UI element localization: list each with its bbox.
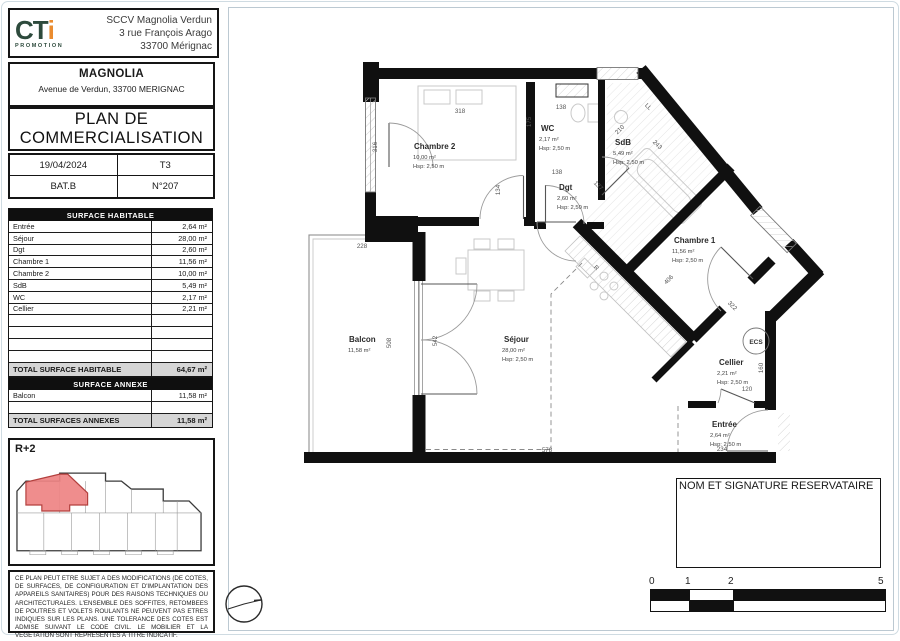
logo-i-text: i <box>48 15 55 45</box>
row-value: 10,00 m² <box>152 269 212 278</box>
row-value: 11,58 m² <box>152 391 212 400</box>
svg-text:WC: WC <box>541 124 555 133</box>
svg-text:Dgt: Dgt <box>559 183 573 192</box>
building-locator-miniplan <box>10 455 209 555</box>
svg-text:Hsp: 2,50 m: Hsp: 2,50 m <box>557 205 588 211</box>
disclaimer-text: CE PLAN PEUT ETRE SUJET A DES MODIFICATI… <box>15 575 208 641</box>
table-row-empty <box>9 338 212 350</box>
company-address: SCCV Magnolia Verdun 3 rue François Arag… <box>106 14 212 53</box>
project-box: MAGNOLIA Avenue de Verdun, 33700 MERIGNA… <box>8 62 215 107</box>
table-row: Chambre 210,00 m² <box>9 267 212 279</box>
floor-locator-box: R+2 <box>8 438 215 566</box>
svg-text:2,60 m²: 2,60 m² <box>557 196 577 202</box>
row-label: Cellier <box>9 304 152 315</box>
table-row: SdB5,49 m² <box>9 279 212 291</box>
company-header-box: CTi PROMOTION SCCV Magnolia Verdun 3 rue… <box>8 8 219 58</box>
scale-bar: 0 1 2 5 <box>650 576 886 612</box>
row-value: 2,17 m² <box>152 293 212 302</box>
row-value: 5,49 m² <box>152 281 212 290</box>
table-row: Cellier2,21 m² <box>9 303 212 315</box>
dim: 318 <box>455 108 466 115</box>
project-name: MAGNOLIA <box>10 68 213 80</box>
dim: 316 <box>372 141 379 152</box>
scale-ticks: 0 1 2 5 <box>650 576 886 589</box>
row-value: 2,21 m² <box>152 304 212 313</box>
dim: 542 <box>432 335 439 346</box>
scale-tick: 0 <box>649 576 655 587</box>
table-row: Séjour28,00 m² <box>9 232 212 244</box>
table-row: Entrée2,64 m² <box>9 221 212 232</box>
total-value: 64,67 m² <box>152 365 212 374</box>
toilet-bowl <box>571 104 585 122</box>
svg-text:Hsp: 2,50 m: Hsp: 2,50 m <box>502 357 533 363</box>
info-type: T3 <box>118 155 213 176</box>
total-value: 11,58 m² <box>152 416 212 425</box>
logo-promotion-text: PROMOTION <box>15 44 63 50</box>
dim: 120 <box>742 386 753 393</box>
room-label-wc: WC 2,17 m² Hsp: 2,50 m <box>539 124 570 152</box>
info-date: 19/04/2024 <box>10 155 118 176</box>
svg-text:Chambre 2: Chambre 2 <box>414 142 456 151</box>
ecs-label: ECS <box>749 339 763 346</box>
window-chambre1 <box>751 206 797 252</box>
project-address: Avenue de Verdun, 33700 MERIGNAC <box>10 84 213 94</box>
window-top <box>597 68 638 80</box>
surface-habitable-table: SURFACE HABITABLE Entrée2,64 m² Séjour28… <box>8 208 213 377</box>
north-compass <box>222 582 268 628</box>
scale-tick: 5 <box>878 576 884 587</box>
info-building: BAT.B <box>10 176 118 197</box>
total-label: TOTAL SURFACE HABITABLE <box>9 363 152 377</box>
room-label-dgt: Dgt 2,60 m² Hsp: 2,50 m <box>557 183 588 211</box>
surface-annexe-header: SURFACE ANNEXE <box>9 378 212 390</box>
row-value: 28,00 m² <box>152 234 212 243</box>
walls <box>304 62 820 458</box>
row-label: Balcon <box>9 390 152 401</box>
table-row: Dgt2,60 m² <box>9 244 212 256</box>
surface-habitable-header: SURFACE HABITABLE <box>9 209 212 221</box>
company-city: 33700 Mérignac <box>106 40 212 53</box>
surface-annexe-table: SURFACE ANNEXE Balcon11,58 m² TOTAL SURF… <box>8 377 213 428</box>
scale-tick: 2 <box>728 576 734 587</box>
total-label: TOTAL SURFACES ANNEXES <box>9 414 152 428</box>
signature-box: NOM ET SIGNATURE RESERVATAIRE <box>676 478 881 568</box>
svg-text:Balcon: Balcon <box>349 335 376 344</box>
scale-tick: 1 <box>685 576 691 587</box>
window-sejour-balcony <box>415 281 423 395</box>
table-row-empty <box>9 314 212 326</box>
dim: 578 <box>542 447 553 454</box>
pillow <box>456 90 482 104</box>
row-label: Entrée <box>9 221 152 232</box>
svg-text:Hsp: 2,50 m: Hsp: 2,50 m <box>613 160 644 166</box>
dim: 322 <box>726 300 739 313</box>
balcony-outline <box>309 235 419 456</box>
row-value: 2,60 m² <box>152 245 212 254</box>
chair <box>498 239 514 249</box>
svg-text:Hsp: 2,50 m: Hsp: 2,50 m <box>413 164 444 170</box>
dim: 138 <box>552 169 563 176</box>
company-street: 3 rue François Arago <box>106 27 212 40</box>
dim: 160 <box>758 362 765 373</box>
svg-text:28,00 m²: 28,00 m² <box>502 348 525 354</box>
row-value: 2,64 m² <box>152 222 212 231</box>
svg-text:Entrée: Entrée <box>712 420 737 429</box>
info-lot-number: N°207 <box>118 176 213 197</box>
dim: 134 <box>495 184 502 195</box>
compass-needle-tip <box>254 600 261 601</box>
disclaimer-box: CE PLAN PEUT ETRE SUJET A DES MODIFICATI… <box>8 570 215 633</box>
svg-text:Cellier: Cellier <box>719 358 743 367</box>
table-row-empty <box>9 326 212 338</box>
closet <box>556 84 588 97</box>
svg-text:SdB: SdB <box>615 138 631 147</box>
info-box: 19/04/2024 T3 BAT.B N°207 <box>8 153 215 199</box>
room-label-sejour: Séjour 28,00 m² Hsp: 2,50 m <box>502 335 533 363</box>
compass-needle <box>228 600 261 609</box>
svg-text:5,49 m²: 5,49 m² <box>613 151 633 157</box>
row-label: Chambre 2 <box>9 268 152 279</box>
row-label: Chambre 1 <box>9 256 152 267</box>
doc-title-line2: COMMERCIALISATION <box>10 129 213 148</box>
room-label-entree: Entrée 2,64 m² Hsp: 2,50 m <box>710 420 741 448</box>
room-label-chambre2: Chambre 2 10,00 m² Hsp: 2,50 m <box>413 142 456 170</box>
table-row: Balcon11,58 m² <box>9 390 212 401</box>
dim: 138 <box>556 104 567 111</box>
row-label: Séjour <box>9 233 152 244</box>
svg-text:11,56 m²: 11,56 m² <box>672 249 695 255</box>
total-habitable-row: TOTAL SURFACE HABITABLE64,67 m² <box>9 362 212 377</box>
svg-text:2,64 m²: 2,64 m² <box>710 433 730 439</box>
doc-title-line1: PLAN DE <box>10 110 213 129</box>
svg-text:Chambre 1: Chambre 1 <box>674 236 716 245</box>
dim: 175 <box>526 116 533 127</box>
svg-text:11,58 m²: 11,58 m² <box>348 348 371 354</box>
svg-text:Hsp: 2,50 m: Hsp: 2,50 m <box>672 258 703 264</box>
scale-bar-graphic <box>650 589 886 612</box>
pillow <box>424 90 450 104</box>
svg-text:Hsp: 2,50 m: Hsp: 2,50 m <box>710 442 741 448</box>
table-row: Chambre 111,56 m² <box>9 255 212 267</box>
svg-text:10,00 m²: 10,00 m² <box>413 155 436 161</box>
svg-text:Hsp: 2,50 m: Hsp: 2,50 m <box>717 380 748 386</box>
room-label-balcon: Balcon 11,58 m² <box>348 335 376 354</box>
plan-de-commercialisation-page: { "company": { "logo_ct": "CT", "logo_i"… <box>0 0 900 636</box>
document-title-box: PLAN DE COMMERCIALISATION <box>8 107 215 151</box>
logo-ct-text: CT <box>15 15 48 45</box>
row-value: 11,56 m² <box>152 257 212 266</box>
room-label-chambre1: Chambre 1 11,56 m² Hsp: 2,50 m <box>672 236 716 264</box>
room-label-cellier: Cellier 2,21 m² Hsp: 2,50 m <box>717 358 748 386</box>
cti-logo: CTi PROMOTION <box>15 17 63 50</box>
signature-label: NOM ET SIGNATURE RESERVATAIRE <box>679 480 873 492</box>
chair <box>474 239 490 249</box>
floor-level-label: R+2 <box>10 440 213 455</box>
company-name: SCCV Magnolia Verdun <box>106 14 212 27</box>
row-label: SdB <box>9 280 152 291</box>
table-row-empty <box>9 350 212 362</box>
table-row-empty <box>9 401 212 413</box>
dim: 228 <box>357 243 368 250</box>
row-label: Dgt <box>9 245 152 256</box>
svg-text:Séjour: Séjour <box>504 335 529 344</box>
svg-text:Hsp: 2,50 m: Hsp: 2,50 m <box>539 146 570 152</box>
chair <box>498 291 514 301</box>
svg-text:2,21 m²: 2,21 m² <box>717 371 737 377</box>
chair <box>456 258 466 274</box>
total-annexe-row: TOTAL SURFACES ANNEXES11,58 m² <box>9 413 212 428</box>
dim: 406 <box>663 273 676 286</box>
row-label: WC <box>9 292 152 303</box>
svg-text:2,17 m²: 2,17 m² <box>539 137 559 143</box>
table-row: WC2,17 m² <box>9 291 212 303</box>
dim: 508 <box>386 337 393 348</box>
